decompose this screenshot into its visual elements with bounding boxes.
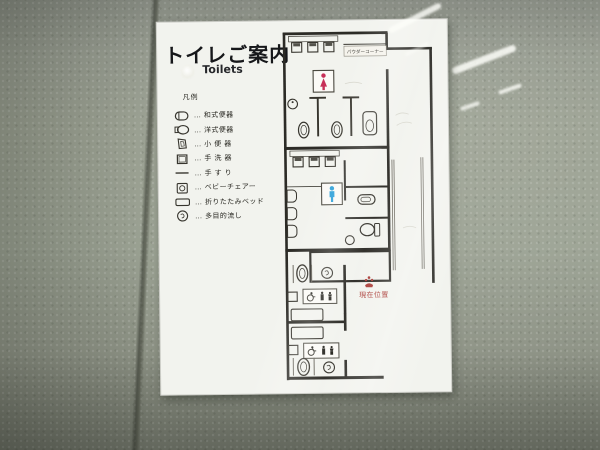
round-basin bbox=[288, 99, 298, 109]
legend-label: 和式便器 bbox=[204, 110, 234, 120]
round-basin bbox=[345, 236, 354, 245]
service-shaft bbox=[310, 251, 390, 282]
wash-basins bbox=[292, 42, 334, 52]
legend-row: … 和式便器 bbox=[174, 107, 263, 122]
wash-basin bbox=[289, 345, 298, 354]
legend-separator: … bbox=[195, 212, 202, 220]
western-toilet bbox=[360, 223, 380, 236]
legend: 凡例 … 和式便器 … 洋式便器 bbox=[174, 91, 265, 223]
legend-label: 折りたたみベッド bbox=[205, 196, 264, 207]
folding-bed bbox=[291, 327, 323, 339]
toilet bbox=[297, 265, 308, 282]
current-location-label: 現在位置 bbox=[359, 290, 389, 299]
legend-heading: 凡例 bbox=[183, 91, 263, 102]
multipurpose-sink bbox=[322, 267, 333, 278]
flash-reflection bbox=[181, 64, 194, 80]
accessible-room-2 bbox=[288, 327, 339, 376]
wash-basin bbox=[288, 292, 297, 301]
urinals bbox=[287, 190, 297, 237]
sign-subtitle-english: Toilets bbox=[202, 63, 243, 76]
legend-row: … 手 洗 器 bbox=[174, 151, 263, 166]
legend-separator: … bbox=[195, 198, 202, 206]
toilet-guide-sign-panel: トイレご案内 Toilets 凡例 … 和式便器 … 洋式便器 bbox=[156, 18, 453, 396]
mens-room bbox=[286, 150, 389, 245]
legend-separator: … bbox=[195, 169, 202, 177]
handrail-icon bbox=[174, 167, 190, 180]
folding-bed bbox=[291, 309, 323, 321]
grab-bars bbox=[293, 358, 314, 376]
current-location: 現在位置 bbox=[359, 276, 389, 299]
baby-chair-icon bbox=[175, 181, 191, 194]
legend-row: … 小 便 器 bbox=[174, 136, 263, 151]
legend-row: … 洋式便器 bbox=[174, 122, 263, 137]
western-toilet-icon bbox=[174, 123, 190, 136]
handrail-lines bbox=[392, 157, 424, 270]
legend-row: … 多目的流し bbox=[175, 208, 264, 223]
toilet bbox=[298, 358, 310, 375]
legend-separator: … bbox=[195, 183, 202, 191]
squat-toilet bbox=[358, 195, 375, 205]
hand-wash-basin-icon bbox=[174, 152, 190, 165]
accessible-room-1 bbox=[288, 264, 337, 320]
scratch-marks bbox=[345, 81, 416, 228]
multipurpose-sink-icon bbox=[175, 210, 191, 223]
legend-label: 小 便 器 bbox=[204, 139, 232, 149]
legend-row: … 折りたたみベッド bbox=[175, 194, 264, 209]
accessibility-sign-board bbox=[303, 289, 337, 304]
stall-partitions bbox=[309, 97, 359, 136]
multipurpose-sink bbox=[324, 362, 335, 373]
legend-label: ベビーチェアー bbox=[205, 182, 257, 193]
wash-basins bbox=[293, 157, 335, 167]
photo-of-toilet-guide-sign: トイレご案内 Toilets 凡例 … 和式便器 … 洋式便器 bbox=[0, 0, 600, 450]
accessibility-sign-board bbox=[304, 343, 339, 359]
urinal-icon bbox=[174, 138, 190, 151]
grab-bars bbox=[293, 265, 312, 283]
folding-bed-icon bbox=[175, 195, 191, 208]
legend-label: 多目的流し bbox=[205, 211, 242, 221]
squat-toilet-icon bbox=[174, 109, 190, 122]
legend-label: 手 す り bbox=[205, 168, 233, 178]
counter bbox=[290, 150, 339, 156]
plan-walls bbox=[283, 31, 436, 380]
legend-separator: … bbox=[194, 111, 201, 119]
legend-label: 手 洗 器 bbox=[204, 153, 232, 163]
legend-row: … 手 す り bbox=[174, 165, 263, 180]
legend-separator: … bbox=[194, 140, 201, 148]
legend-label: 洋式便器 bbox=[204, 124, 234, 134]
legend-row: … ベビーチェアー bbox=[175, 179, 264, 194]
stall-walls bbox=[345, 160, 389, 218]
floor-plan-map: パウダーコーナー bbox=[281, 30, 443, 384]
legend-separator: … bbox=[194, 155, 201, 163]
western-toilets bbox=[298, 112, 376, 138]
powder-corner: パウダーコーナー bbox=[343, 44, 386, 56]
counter bbox=[289, 36, 338, 42]
legend-separator: … bbox=[194, 126, 201, 134]
